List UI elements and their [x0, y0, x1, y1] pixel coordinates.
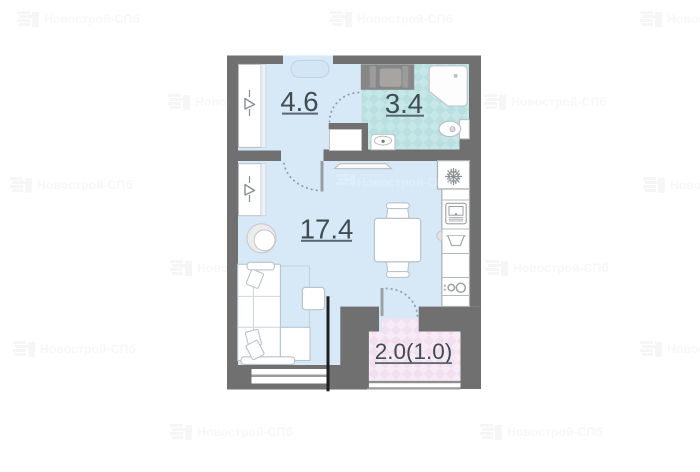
- svg-text:17.4: 17.4: [300, 213, 354, 244]
- svg-text:Новострой-СПб: Новострой-СПб: [513, 261, 609, 275]
- svg-text:Новострой-СПб: Новострой-СПб: [507, 425, 603, 439]
- svg-text:Новострой-СПб: Новострой-СПб: [44, 12, 140, 26]
- svg-text:Новострой-СПб: Новострой-СПб: [40, 342, 136, 356]
- svg-text:4.6: 4.6: [280, 86, 318, 117]
- svg-text:Новострой-СПб: Новострой-СПб: [667, 342, 700, 356]
- svg-text:Новострой-СПб: Новострой-СПб: [357, 12, 453, 26]
- svg-text:3.4: 3.4: [385, 88, 423, 119]
- svg-text:2.0(1.0): 2.0(1.0): [375, 339, 453, 364]
- svg-text:Новострой-СПб: Новострой-СПб: [197, 425, 293, 439]
- svg-text:Новострой-СПб: Новострой-СПб: [511, 95, 607, 109]
- svg-text:Новострой-СПб: Новострой-СПб: [357, 176, 453, 190]
- svg-text:Новострой-СПб: Новострой-СПб: [670, 178, 700, 192]
- svg-text:Новострой-СПб: Новострой-СПб: [37, 178, 133, 192]
- svg-text:Новострой-СПб: Новострой-СПб: [667, 12, 700, 26]
